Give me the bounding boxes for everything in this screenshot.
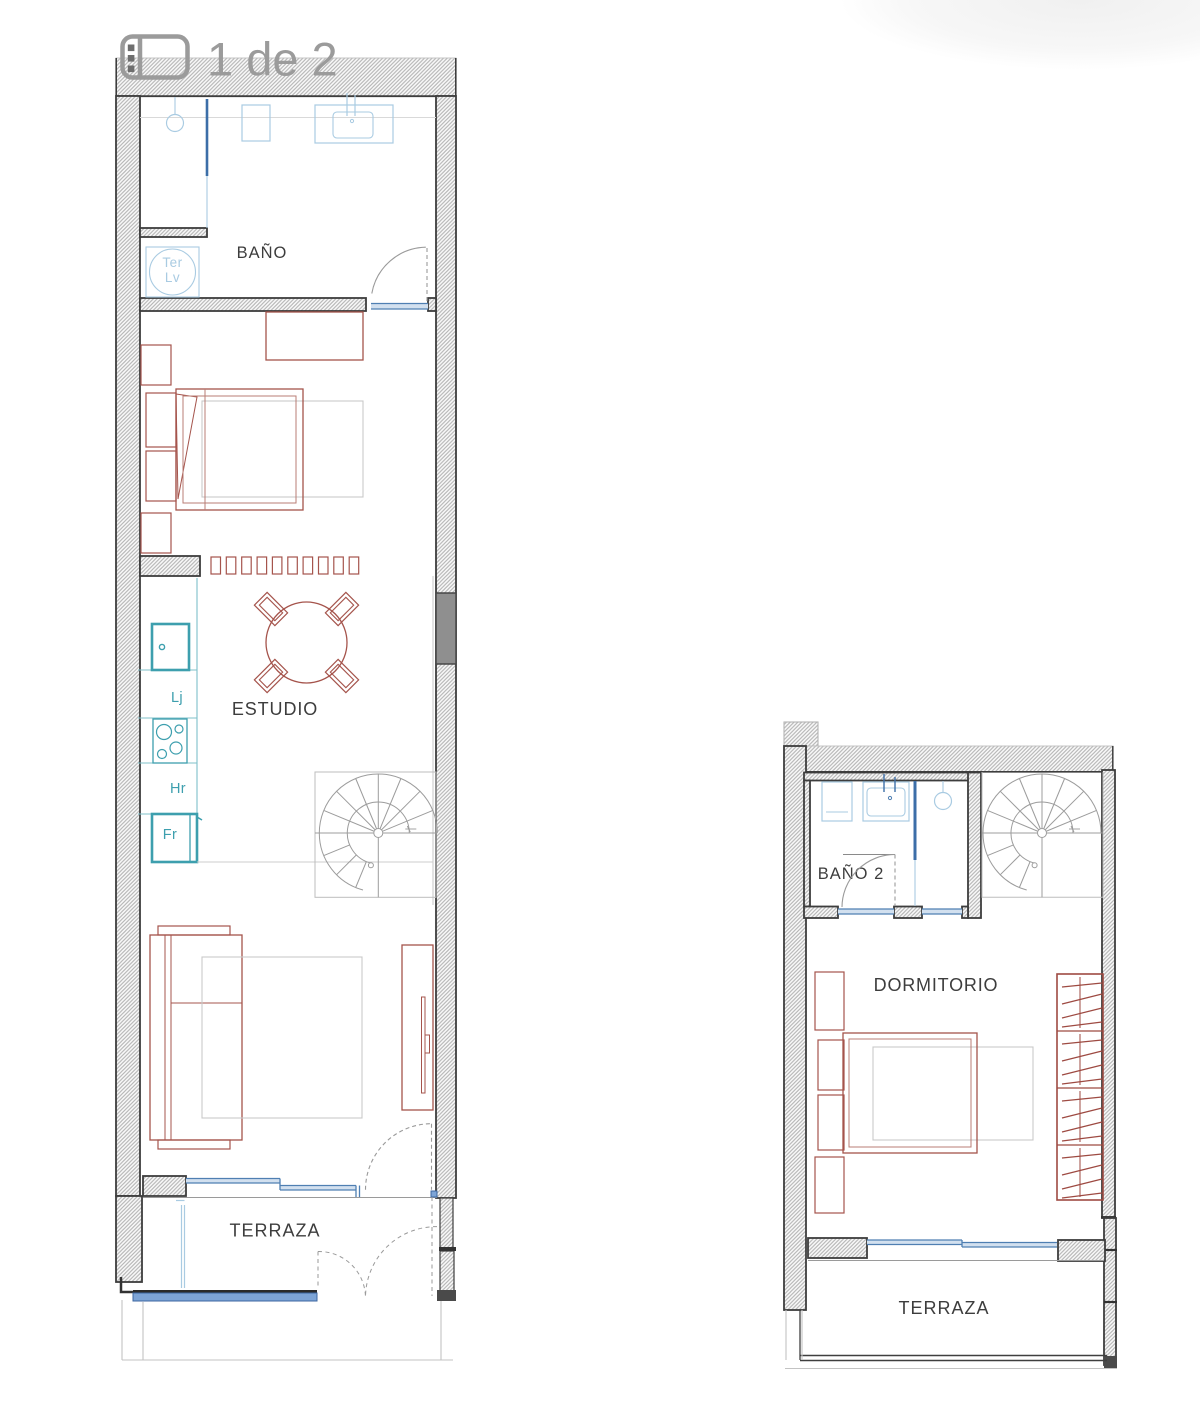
svg-text:Hr: Hr: [170, 781, 186, 797]
svg-text:1 de 2: 1 de 2: [207, 33, 338, 86]
svg-text:BAÑO: BAÑO: [237, 242, 288, 262]
svg-text:Ter: Ter: [162, 255, 182, 270]
svg-text:DORMITORIO: DORMITORIO: [874, 975, 999, 995]
svg-text:Lj: Lj: [171, 690, 183, 706]
svg-text:Lv: Lv: [165, 270, 180, 285]
svg-text:ESTUDIO: ESTUDIO: [232, 699, 318, 719]
svg-text:BAÑO 2: BAÑO 2: [818, 863, 885, 883]
svg-text:TERRAZA: TERRAZA: [898, 1298, 989, 1318]
svg-text:TERRAZA: TERRAZA: [229, 1221, 320, 1241]
svg-text:Fr: Fr: [163, 827, 178, 843]
